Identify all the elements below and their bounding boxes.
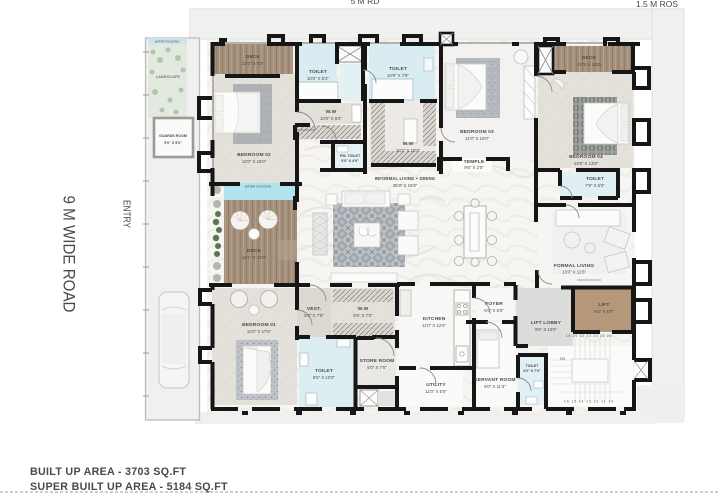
svg-text:UTILITY: UTILITY — [426, 382, 446, 388]
svg-text:10'2" X 10'0": 10'2" X 10'0" — [396, 148, 421, 153]
svg-text:5'0" X 7'0": 5'0" X 7'0" — [304, 313, 324, 318]
svg-text:TOILET: TOILET — [526, 364, 540, 368]
svg-text:KITCHEN: KITCHEN — [423, 316, 446, 322]
svg-text:5'0" X 4'9": 5'0" X 4'9" — [341, 159, 359, 163]
svg-text:PW. TOILET: PW. TOILET — [340, 154, 361, 158]
svg-text:W.W: W.W — [403, 141, 414, 147]
svg-text:19 20 22 23 24 25 26: 19 20 22 23 24 25 26 — [566, 334, 612, 338]
svg-text:5 M RD: 5 M RD — [351, 0, 380, 6]
svg-text:BEDROOM 04: BEDROOM 04 — [569, 154, 603, 160]
svg-text:ENTRY: ENTRY — [121, 200, 132, 228]
svg-text:BEDROOM 02: BEDROOM 02 — [237, 152, 271, 158]
svg-text:DECK: DECK — [246, 54, 261, 60]
svg-text:DECK: DECK — [247, 248, 262, 254]
svg-text:TOILET: TOILET — [309, 69, 327, 75]
svg-text:10'9" X 7'9": 10'9" X 7'9" — [387, 73, 409, 78]
svg-text:DECK: DECK — [582, 55, 597, 61]
svg-text:13'6" X 13'6": 13'6" X 13'6" — [574, 161, 599, 166]
svg-text:7'9" X 5'0": 7'9" X 5'0" — [585, 183, 605, 188]
svg-text:VEST.: VEST. — [307, 306, 322, 312]
svg-text:FOYER: FOYER — [485, 301, 503, 307]
svg-text:BEDROOM 03: BEDROOM 03 — [460, 129, 494, 135]
svg-text:LIFT: LIFT — [599, 302, 610, 308]
svg-text:INFORMAL LIVING + DINING: INFORMAL LIVING + DINING — [375, 176, 436, 181]
svg-text:SERVANT ROOM: SERVANT ROOM — [474, 377, 515, 383]
svg-text:12'0" X 15'0": 12'0" X 15'0" — [242, 159, 267, 164]
svg-text:W.W: W.W — [326, 109, 337, 115]
svg-text:16 15 14 13 12 11 10: 16 15 14 13 12 11 10 — [564, 400, 614, 404]
svg-text:BUILT UP AREA - 3703 SQ.FT: BUILT UP AREA - 3703 SQ.FT — [30, 466, 186, 478]
svg-text:DN: DN — [560, 357, 565, 361]
svg-text:SUPER BUILT UP AREA - 5184 SQ.: SUPER BUILT UP AREA - 5184 SQ.FT — [30, 481, 228, 493]
svg-text:TOILET: TOILET — [389, 66, 407, 72]
svg-text:9'6" X 10'0": 9'6" X 10'0" — [535, 327, 557, 332]
svg-text:10'0" X 5'0": 10'0" X 5'0" — [320, 116, 342, 121]
svg-text:11'0" X 5'0": 11'0" X 5'0" — [425, 389, 447, 394]
svg-text:12'0" X 5'0": 12'0" X 5'0" — [242, 61, 264, 66]
svg-text:TOILET: TOILET — [586, 176, 604, 182]
svg-text:13'0" X 11'6": 13'0" X 11'6" — [562, 270, 586, 275]
svg-text:LIFT LOBBY: LIFT LOBBY — [531, 320, 562, 326]
svg-text:BEDROOM 01: BEDROOM 01 — [242, 322, 276, 328]
svg-text:W.W: W.W — [358, 306, 369, 312]
svg-text:6'0" X 11'3": 6'0" X 11'3" — [484, 384, 506, 389]
svg-text:LANDSCAPE: LANDSCAPE — [156, 74, 181, 79]
svg-text:GUARDS ROOM: GUARDS ROOM — [159, 134, 187, 138]
svg-text:11'0" X 12'6": 11'0" X 12'6" — [422, 323, 446, 328]
svg-text:1.5 M ROS: 1.5 M ROS — [636, 0, 678, 9]
svg-text:8'6" X 7'0": 8'6" X 7'0" — [353, 313, 373, 318]
svg-text:4175 X 1225: 4175 X 1225 — [577, 62, 602, 67]
svg-text:FORMAL LIVING: FORMAL LIVING — [554, 263, 594, 269]
svg-text:5'0" X 7'0": 5'0" X 7'0" — [367, 365, 387, 370]
svg-text:5'0" X 5'0": 5'0" X 5'0" — [164, 141, 182, 145]
svg-text:36'3" X 16'9": 36'3" X 16'9" — [393, 183, 418, 188]
svg-text:8'6" X 10'0": 8'6" X 10'0" — [313, 375, 335, 380]
svg-text:12'1" X 13'0": 12'1" X 13'0" — [242, 255, 267, 260]
svg-text:10'0" X 8'3": 10'0" X 8'3" — [307, 76, 329, 81]
svg-text:TOILET: TOILET — [315, 368, 333, 374]
svg-text:STORE ROOM: STORE ROOM — [360, 358, 395, 364]
svg-text:WATER FOUNTAIN: WATER FOUNTAIN — [245, 185, 271, 189]
svg-text:9'6" X 2'0": 9'6" X 2'0" — [464, 165, 484, 170]
svg-text:4'0" X 7'0": 4'0" X 7'0" — [523, 369, 541, 373]
svg-text:12'0" X 17'6": 12'0" X 17'6" — [247, 329, 272, 334]
svg-text:8'0" X 6'0": 8'0" X 6'0" — [594, 309, 614, 314]
svg-text:6'0" X 6'0": 6'0" X 6'0" — [484, 308, 504, 313]
svg-text:WATER FOUNTAIN: WATER FOUNTAIN — [155, 40, 180, 44]
svg-text:14'0" X 16'0": 14'0" X 16'0" — [465, 136, 490, 141]
svg-text:9 M WIDE ROAD: 9 M WIDE ROAD — [60, 196, 79, 313]
